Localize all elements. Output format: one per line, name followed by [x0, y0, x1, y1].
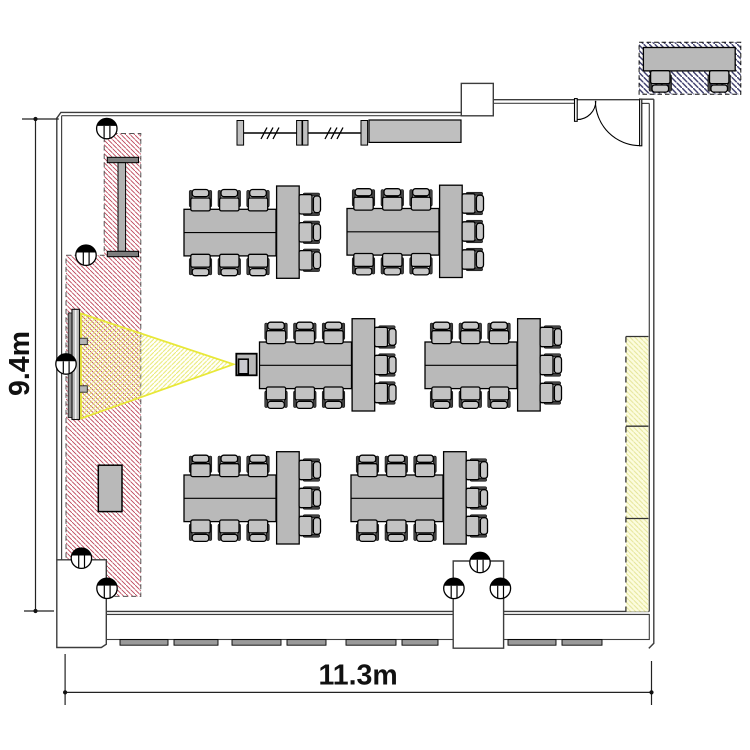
svg-text:9.4m: 9.4m	[4, 331, 36, 396]
svg-text:11.3m: 11.3m	[319, 660, 398, 692]
